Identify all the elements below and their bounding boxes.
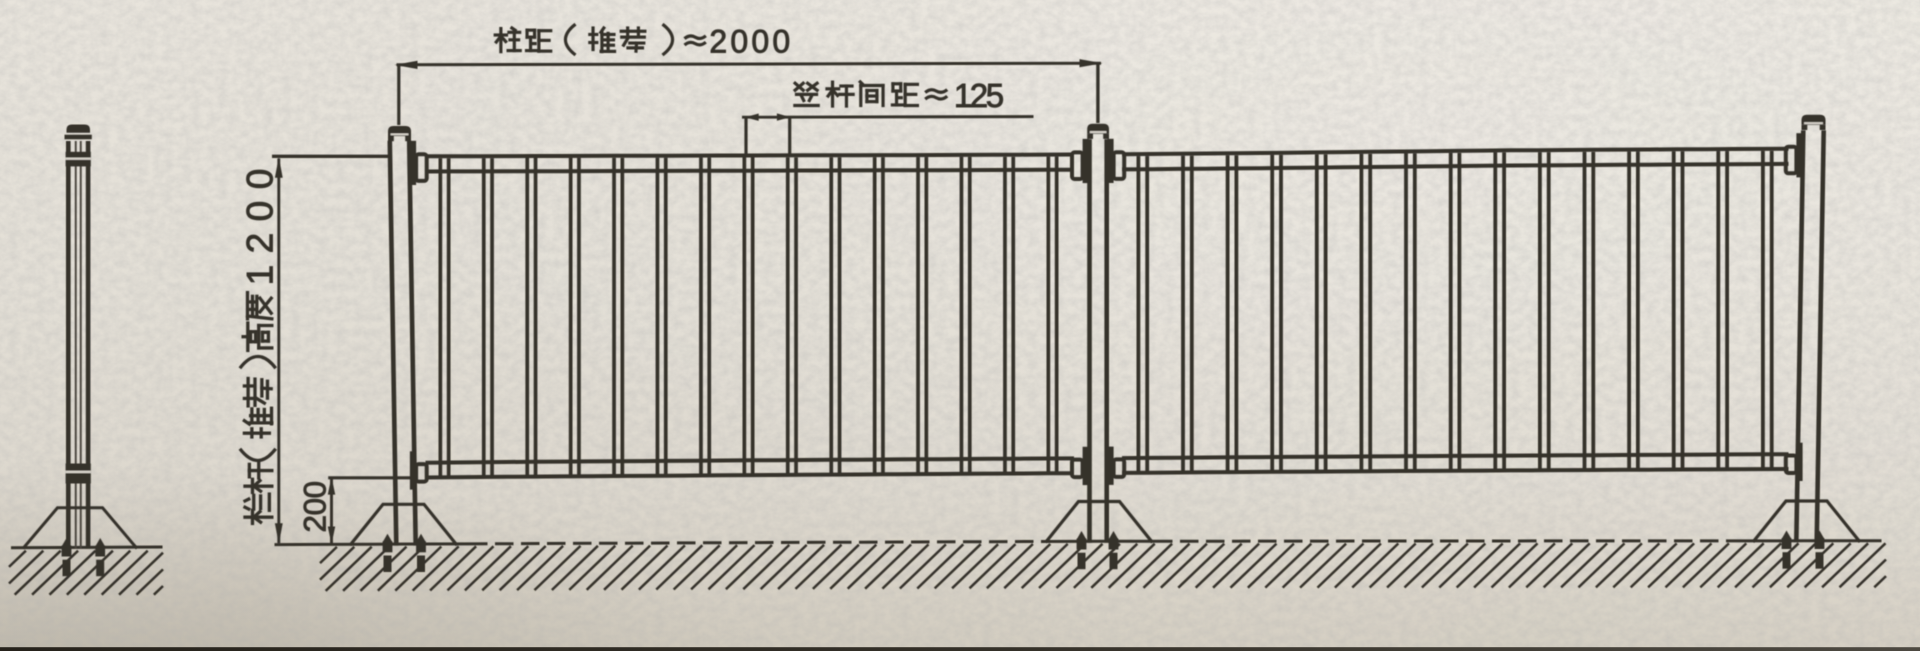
svg-text:2: 2 xyxy=(709,24,727,60)
svg-text:5: 5 xyxy=(986,78,1004,115)
svg-text:0: 0 xyxy=(298,481,333,498)
svg-text:0: 0 xyxy=(298,498,333,515)
svg-text:0: 0 xyxy=(239,169,281,190)
svg-text:2: 2 xyxy=(239,233,281,254)
svg-text:0: 0 xyxy=(239,201,281,222)
svg-text:1: 1 xyxy=(239,265,281,286)
svg-text:2: 2 xyxy=(298,515,333,532)
svg-text:0: 0 xyxy=(772,24,790,60)
svg-text:0: 0 xyxy=(751,24,769,60)
svg-text:0: 0 xyxy=(730,24,748,60)
